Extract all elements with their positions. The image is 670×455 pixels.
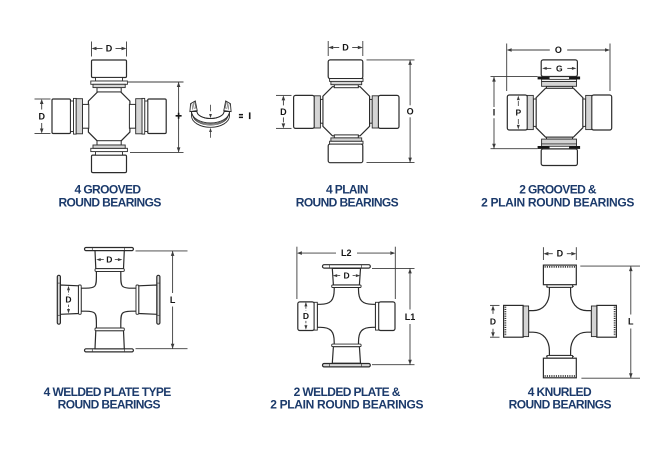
svg-text:D: D bbox=[342, 43, 349, 53]
svg-text:G: G bbox=[556, 63, 563, 73]
svg-text:O: O bbox=[555, 45, 562, 55]
svg-text:D: D bbox=[303, 311, 309, 321]
svg-text:ROUND BEARINGS: ROUND BEARINGS bbox=[58, 196, 161, 210]
svg-text:ROUND BEARINGS: ROUND BEARINGS bbox=[509, 398, 612, 412]
svg-text:2 GROOVED &: 2 GROOVED & bbox=[519, 183, 597, 197]
svg-text:4 GROOVED: 4 GROOVED bbox=[75, 183, 142, 197]
svg-text:2 PLAIN ROUND BEARINGS: 2 PLAIN ROUND BEARINGS bbox=[270, 398, 423, 412]
svg-text:D: D bbox=[344, 271, 350, 281]
svg-text:2 PLAIN ROUND BEARINGS: 2 PLAIN ROUND BEARINGS bbox=[481, 196, 634, 210]
svg-text:D: D bbox=[38, 111, 45, 121]
svg-text:ROUND BEARINGS: ROUND BEARINGS bbox=[296, 196, 399, 210]
svg-text:D: D bbox=[490, 316, 496, 326]
svg-text:D: D bbox=[106, 44, 113, 54]
svg-text:L: L bbox=[170, 295, 176, 305]
svg-text:L: L bbox=[628, 317, 634, 327]
svg-text:D: D bbox=[557, 249, 564, 259]
svg-text:D: D bbox=[280, 107, 287, 117]
svg-text:L2: L2 bbox=[341, 248, 352, 258]
svg-text:D: D bbox=[106, 255, 112, 265]
svg-text:L1: L1 bbox=[405, 312, 416, 322]
svg-text:ROUND BEARINGS: ROUND BEARINGS bbox=[58, 398, 161, 412]
svg-text:I: I bbox=[493, 108, 496, 118]
svg-text:4 PLAIN: 4 PLAIN bbox=[326, 183, 368, 197]
svg-text:P: P bbox=[515, 108, 521, 118]
svg-text:D: D bbox=[65, 295, 71, 305]
svg-text:O: O bbox=[407, 106, 414, 116]
